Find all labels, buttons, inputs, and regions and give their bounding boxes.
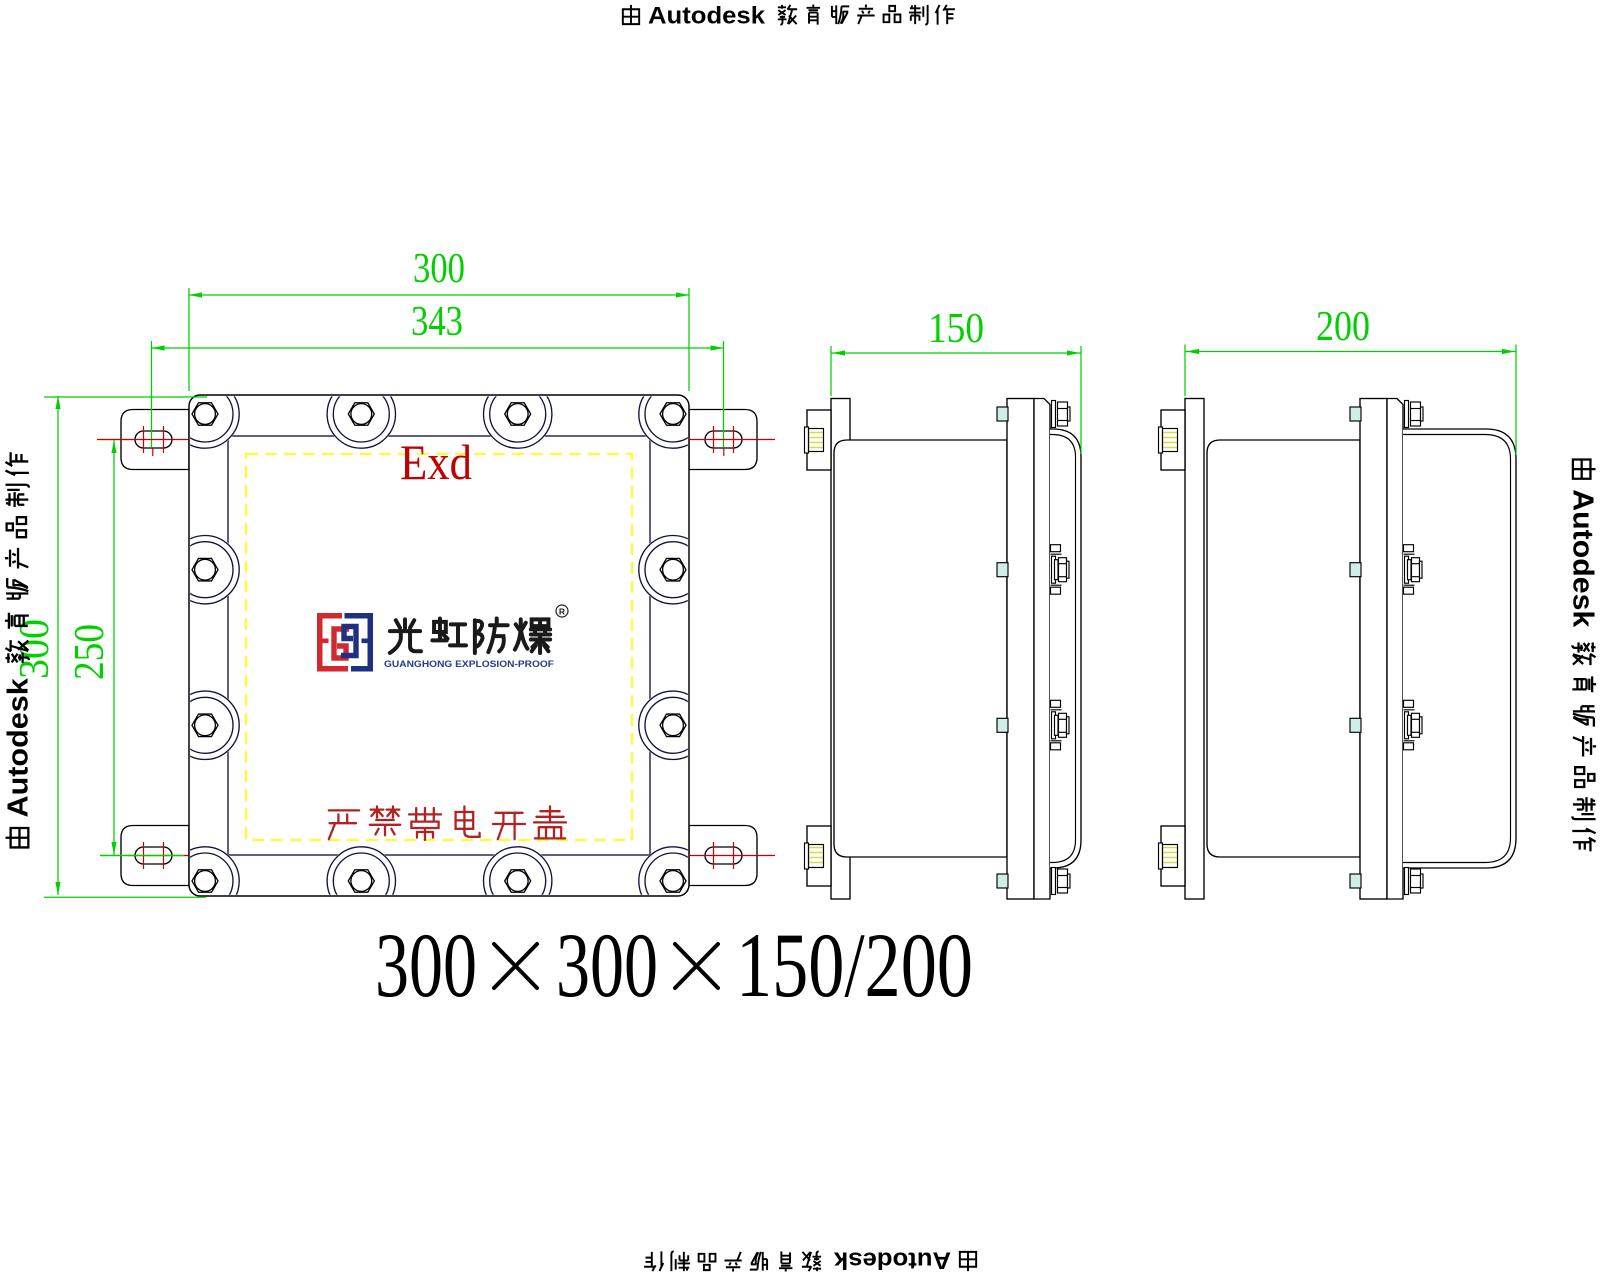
svg-text:300: 300 xyxy=(413,246,465,292)
svg-text:250: 250 xyxy=(67,624,113,680)
svg-text:200: 200 xyxy=(1316,304,1370,350)
svg-text:150: 150 xyxy=(928,306,984,352)
svg-text:343: 343 xyxy=(411,299,463,345)
svg-text:300: 300 xyxy=(556,914,658,1016)
svg-text:300: 300 xyxy=(375,914,477,1016)
svg-text:R: R xyxy=(559,607,565,617)
svg-text:150/200: 150/200 xyxy=(736,914,973,1016)
svg-text:GUANGHONG EXPLOSION-PROOF: GUANGHONG EXPLOSION-PROOF xyxy=(384,659,554,670)
svg-text:Exd: Exd xyxy=(400,434,472,490)
